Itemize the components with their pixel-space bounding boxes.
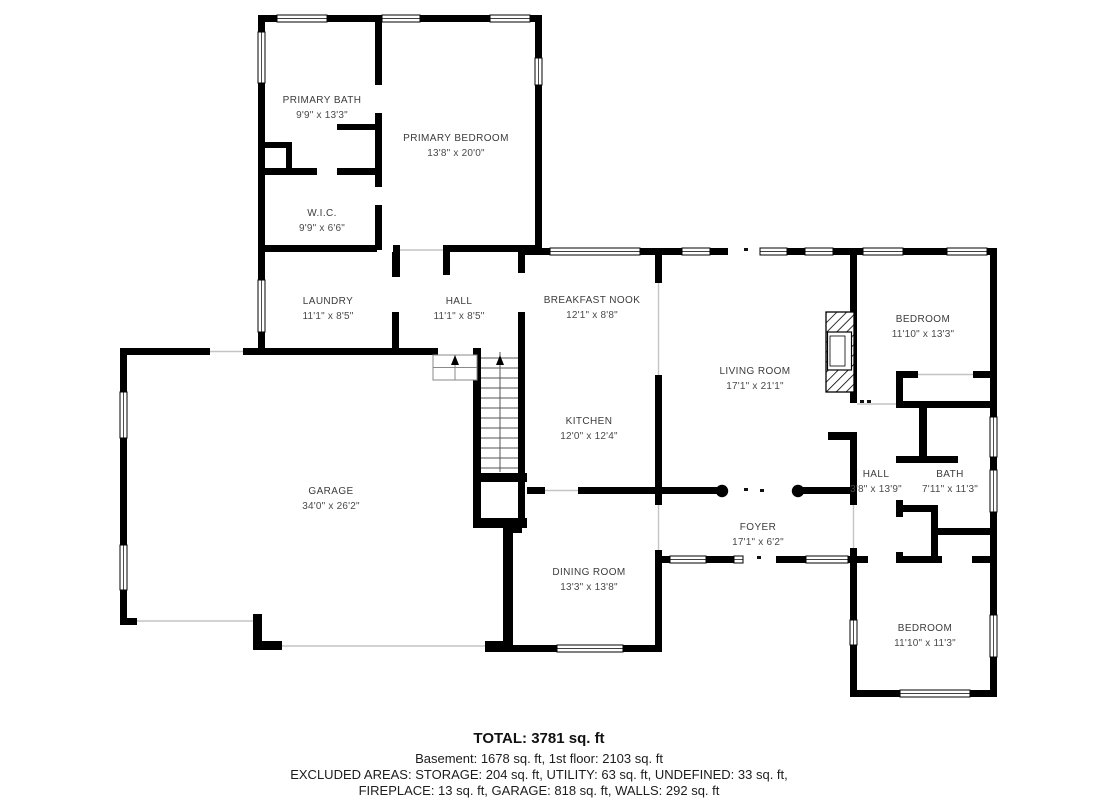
wall-segment (850, 690, 900, 697)
room-dims-bedroom-lower: 11'10" x 11'3" (894, 638, 956, 649)
room-label-dining-room: DINING ROOM (552, 567, 625, 578)
wall-segment (896, 500, 903, 517)
wall-segment (503, 533, 513, 652)
wall-segment (970, 690, 997, 697)
wall-segment (850, 440, 857, 505)
wall-segment (655, 550, 662, 650)
room-dims-bath: 7'11" x 11'3" (922, 484, 978, 495)
wall-segment (896, 401, 990, 408)
wall-segment (258, 15, 265, 32)
door-tick (744, 488, 748, 491)
room-label-laundry: LAUNDRY (303, 296, 353, 307)
wall-segment (420, 15, 490, 22)
summary-excluded-1: EXCLUDED AREAS: STORAGE: 204 sq. ft, UTI… (290, 767, 788, 782)
wall-segment (927, 456, 958, 463)
wall-segment (850, 560, 857, 620)
wall-segment (120, 438, 127, 545)
room-label-living-room: LIVING ROOM (719, 366, 790, 377)
room-label-wic: W.I.C. (307, 208, 337, 219)
room-dims-dining-room: 13'3" x 13'8" (560, 582, 618, 593)
stair-up-arrow (496, 355, 504, 365)
summary-total: TOTAL: 3781 sq. ft (473, 730, 604, 747)
wall-segment (258, 83, 265, 250)
wall-segment (337, 124, 377, 130)
wall-segment (623, 645, 662, 652)
wall-segment (710, 248, 728, 255)
room-dims-hall-upper: 11'1" x 8'5" (434, 311, 485, 322)
room-dims-primary-bedroom: 13'8" x 20'0" (427, 148, 485, 159)
wall-segment (776, 556, 806, 563)
room-label-primary-bedroom: PRIMARY BEDROOM (403, 133, 509, 144)
wall-segment (485, 641, 513, 652)
wall-segment (120, 348, 210, 355)
wall-segment (503, 518, 522, 533)
wall-segment (253, 641, 282, 650)
wall-segment (903, 248, 947, 255)
door-tick (860, 400, 864, 403)
wall-segment (481, 473, 527, 482)
wall-segment (938, 528, 997, 535)
wall-segment (392, 252, 399, 277)
wall-segment (919, 408, 927, 463)
wall-segment (655, 255, 662, 283)
wall-segment (990, 457, 997, 470)
wall-segment (850, 645, 857, 697)
wall-segment (987, 248, 997, 255)
wall-segment (518, 252, 525, 273)
wall-segment (990, 255, 997, 417)
wall-segment (578, 487, 722, 494)
wall-segment (337, 168, 382, 175)
floor-plan-canvas: PRIMARY BATH 9'9" x 13'3" PRIMARY BEDROO… (0, 0, 1114, 800)
wall-segment (931, 505, 938, 563)
wall-segment (535, 15, 542, 58)
summary-floors: Basement: 1678 sq. ft, 1st floor: 2103 s… (415, 751, 663, 766)
room-label-hall-upper: HALL (446, 296, 473, 307)
room-dims-living-room: 17'1" x 21'1" (726, 381, 784, 392)
door-tick (744, 248, 748, 251)
wall-segment (120, 618, 137, 625)
summary-excluded-2: FIREPLACE: 13 sq. ft, GARAGE: 818 sq. ft… (359, 783, 720, 798)
wall-segment (828, 432, 857, 440)
wall-segment (518, 312, 525, 522)
room-dims-breakfast-nook: 12'1" x 8'8" (566, 310, 618, 321)
foyer-columns (716, 248, 871, 559)
walls-layer (120, 15, 997, 697)
room-dims-garage: 34'0" x 26'2" (302, 501, 360, 512)
fireplace (826, 312, 854, 392)
wall-segment (535, 85, 542, 255)
wall-segment (896, 456, 919, 463)
windows-layer (120, 15, 997, 697)
room-label-garage: GARAGE (308, 486, 353, 497)
room-dims-laundry: 11'1" x 8'5" (303, 311, 354, 322)
column (716, 485, 728, 497)
wall-segment (640, 248, 682, 255)
wall-segment (258, 245, 377, 252)
wall-segment (787, 248, 805, 255)
room-labels: PRIMARY BATH 9'9" x 13'3" PRIMARY BEDROO… (283, 95, 979, 649)
column (792, 485, 804, 497)
wall-segment (990, 512, 997, 615)
room-label-bedroom-lower: BEDROOM (898, 623, 952, 634)
wall-segment (518, 248, 550, 255)
door-tick (757, 556, 761, 559)
wall-segment (375, 205, 382, 250)
room-dims-foyer: 17'1" x 6'2" (732, 537, 784, 548)
wall-segment (258, 252, 265, 280)
wall-segment (706, 556, 734, 563)
room-label-hall-right: HALL (863, 469, 890, 480)
door-tick (760, 489, 764, 492)
room-label-bath: BATH (936, 469, 964, 480)
wall-segment (443, 245, 450, 275)
wall-segment (375, 22, 382, 85)
room-dims-primary-bath: 9'9" x 13'3" (296, 110, 348, 121)
room-label-breakfast-nook: BREAKFAST NOOK (544, 295, 641, 306)
wall-segment (120, 348, 127, 392)
floor-plan-page: PRIMARY BATH 9'9" x 13'3" PRIMARY BEDROO… (0, 0, 1114, 800)
wall-segment (258, 168, 317, 175)
wall-segment (896, 556, 942, 563)
room-dims-kitchen: 12'0" x 12'4" (560, 431, 618, 442)
room-dims-bedroom-upper: 11'10" x 13'3" (892, 329, 955, 340)
room-label-primary-bath: PRIMARY BATH (283, 95, 362, 106)
room-dims-hall-right: 3'8" x 13'9" (850, 484, 902, 495)
wall-segment (848, 556, 868, 563)
area-summary: TOTAL: 3781 sq. ft Basement: 1678 sq. ft… (290, 730, 788, 798)
room-label-bedroom-upper: BEDROOM (896, 314, 950, 325)
wall-segment (243, 348, 438, 355)
wall-segment (798, 487, 850, 494)
wall-segment (655, 375, 662, 494)
wall-segment (327, 15, 382, 22)
room-label-kitchen: KITCHEN (566, 416, 613, 427)
wall-segment (833, 248, 863, 255)
wall-segment (527, 487, 545, 494)
room-label-foyer: FOYER (740, 522, 776, 533)
room-dims-wic: 9'9" x 6'6" (299, 223, 345, 234)
door-tick (867, 400, 871, 403)
